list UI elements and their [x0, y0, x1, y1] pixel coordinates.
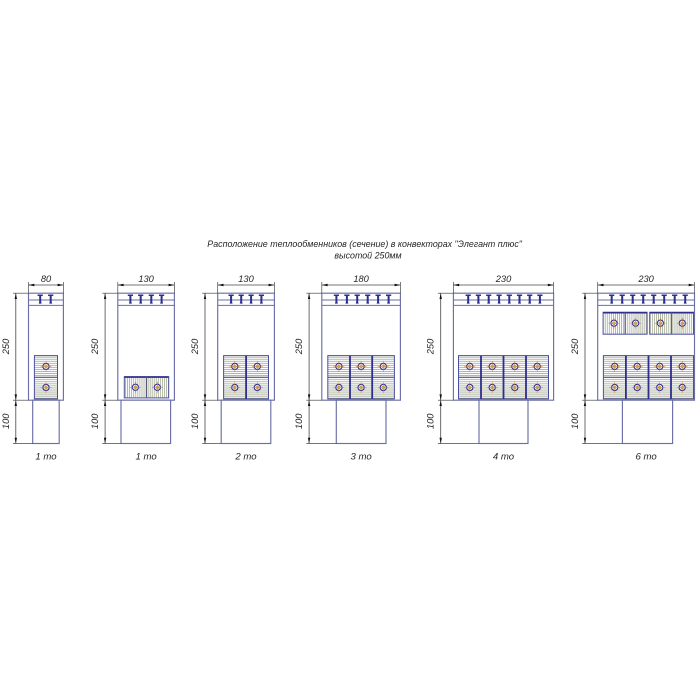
svg-text:250: 250 [426, 338, 436, 355]
svg-text:3 то: 3 то [350, 452, 372, 463]
svg-text:Расположение теплообменников (: Расположение теплообменников (сечение) в… [207, 239, 522, 249]
svg-text:1 то: 1 то [135, 452, 157, 463]
svg-text:4 то: 4 то [493, 452, 515, 463]
svg-text:100: 100 [570, 413, 580, 429]
svg-text:230: 230 [637, 274, 654, 284]
svg-text:100: 100 [90, 413, 100, 429]
svg-text:250: 250 [1, 338, 11, 355]
svg-text:130: 130 [238, 274, 254, 284]
svg-text:250: 250 [190, 338, 200, 355]
svg-text:высотой 250мм: высотой 250мм [334, 250, 401, 260]
svg-text:250: 250 [90, 338, 100, 355]
svg-text:6 то: 6 то [635, 452, 657, 463]
svg-text:80: 80 [41, 274, 52, 284]
svg-text:250: 250 [294, 338, 304, 355]
svg-text:100: 100 [426, 413, 436, 429]
svg-text:250: 250 [570, 338, 580, 355]
svg-text:180: 180 [353, 274, 369, 284]
svg-text:100: 100 [1, 413, 11, 429]
svg-text:100: 100 [294, 413, 304, 429]
svg-text:1 то: 1 то [35, 452, 57, 463]
svg-text:2 то: 2 то [234, 452, 257, 463]
svg-text:130: 130 [138, 274, 154, 284]
svg-text:230: 230 [495, 274, 512, 284]
svg-text:100: 100 [190, 413, 200, 429]
